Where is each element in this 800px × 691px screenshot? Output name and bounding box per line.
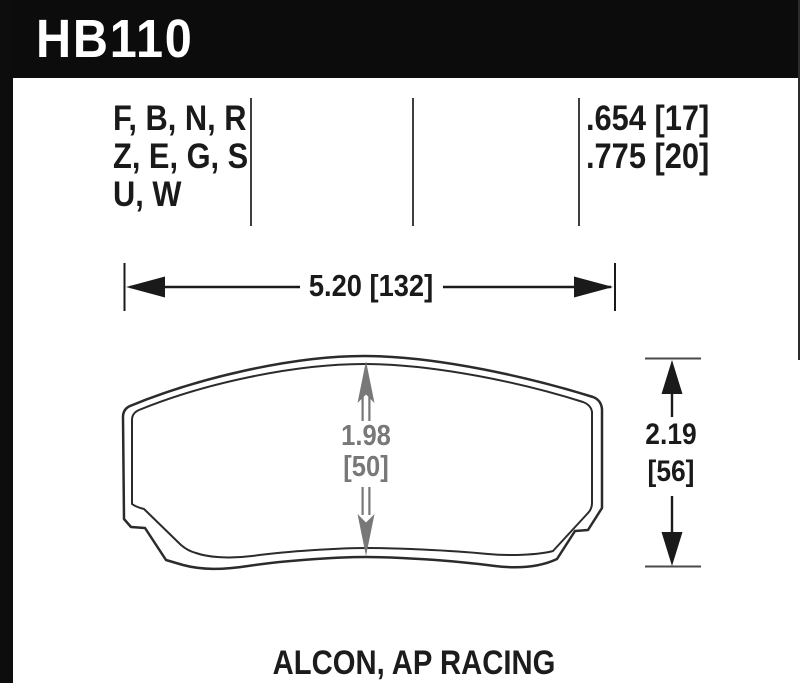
brake-pad-diagram [0,0,800,691]
center-height-inches-label: 1.98 [341,420,391,453]
width-dimension-label: 5.20 [132] [309,268,433,304]
center-height-mm-label: [50] [343,451,388,484]
center-dim-up-arrow [358,361,375,403]
brake-pad-spec-sheet: { "header": { "part_number": "HB110" }, … [0,0,800,691]
overall-height-mm-label: [56] [648,455,695,489]
center-dim-down-arrow [358,514,375,556]
height-dim-up-arrow [662,360,683,394]
width-dim-right-arrow [574,277,613,298]
applications-label: ALCON, AP RACING [273,644,556,683]
height-dim-down-arrow [662,532,683,566]
overall-height-inches-label: 2.19 [645,418,696,452]
width-dim-left-arrow [126,277,165,298]
